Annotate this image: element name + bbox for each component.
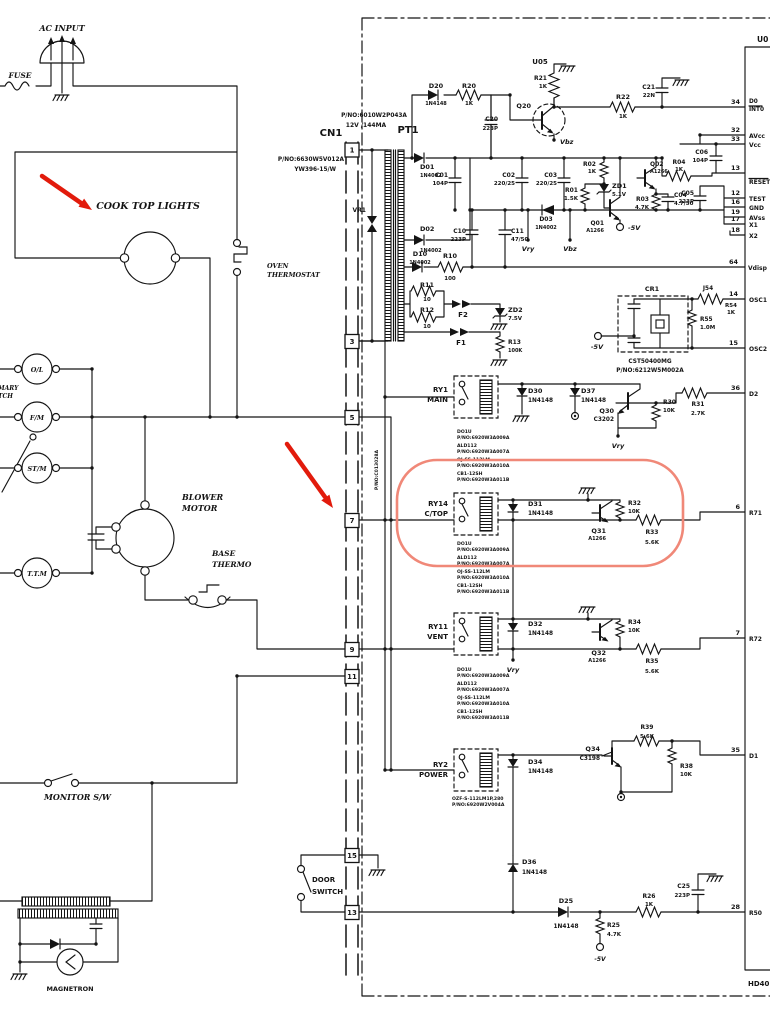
base-thermo-label-1: BASE <box>211 549 236 558</box>
zd1: ZD1 <box>612 182 627 190</box>
d36-val: 1N4148 <box>522 870 547 876</box>
pin34-int0: INT0 <box>749 107 764 113</box>
f2-label: F2 <box>458 311 468 319</box>
r30-val: 10K <box>663 408 676 414</box>
j54: J54 <box>702 286 713 292</box>
q31-val: A1266 <box>588 536 606 542</box>
magnetron-label: MAGNETRON <box>46 985 93 993</box>
c01: C01 <box>435 172 448 179</box>
rotary-switch <box>0 354 345 588</box>
cn1-pin-9: 9 <box>350 646 355 654</box>
q32-val: A1266 <box>588 658 606 664</box>
ry2: RY2 <box>433 761 448 769</box>
d32-val: 1N4148 <box>528 631 553 637</box>
q30: Q30 <box>599 407 614 415</box>
c02: C02 <box>502 172 515 179</box>
d37: D37 <box>581 387 595 395</box>
ry11-part-4: P/NO:6920W3A007A <box>457 687 510 693</box>
bottom-signal-row <box>359 856 745 951</box>
cn1-model: YW396-15/W <box>293 167 336 173</box>
ry14-part-6: P/NO:6920W3A010A <box>457 575 510 581</box>
c10: C10 <box>453 228 466 235</box>
neg5v-1: -5V <box>628 224 641 232</box>
d10-val: 1N4002 <box>409 260 431 266</box>
r31-val: 2.7K <box>691 411 706 417</box>
c06: C06 <box>695 149 708 156</box>
pin33-name: Vcc <box>749 142 761 149</box>
neg5v-2: -5V <box>591 343 604 351</box>
r38-val: 10K <box>680 772 693 778</box>
contact-ttm: T.T.M <box>27 570 48 578</box>
cn1-pin-3: 3 <box>350 338 355 346</box>
d10: D10 <box>413 250 428 258</box>
q01-val: A1266 <box>586 228 604 234</box>
d32: D32 <box>528 620 542 628</box>
annotation-arrow-cook-top <box>42 176 92 210</box>
pin13-num: 13 <box>731 164 740 172</box>
ry1-part-2: P/NO:6920W3A009A <box>457 435 510 441</box>
pin14-name: OSC1 <box>749 297 767 304</box>
pin17-name: X1 <box>749 222 758 229</box>
pin15-num: 15 <box>729 339 739 347</box>
ry1-part-6: P/NO:6920W3A010A <box>457 463 510 469</box>
cr1-label: CR1 <box>645 285 660 293</box>
q02: Q02 <box>650 161 663 168</box>
ry11-part-2: P/NO:6920W3A009A <box>457 673 510 679</box>
r22: R22 <box>616 93 630 101</box>
pin13-name: RESET <box>749 179 770 186</box>
c01-val: 104P <box>432 181 448 187</box>
oven-thermostat-label-1: OVEN <box>267 262 290 270</box>
door-switch-label-1: DOOR <box>312 876 336 884</box>
pin32-num: 32 <box>731 126 740 134</box>
ry14-part-5: OJ-SS-112LM <box>457 569 490 575</box>
q01: Q01 <box>591 220 604 227</box>
vry-3: Vry <box>507 666 520 674</box>
r10: R10 <box>443 252 458 260</box>
r21: R21 <box>534 75 547 82</box>
r10-val: 100 <box>444 276 456 282</box>
q34: Q34 <box>585 745 600 753</box>
zd1-val: 5.1V <box>612 192 627 198</box>
pin18-num: 18 <box>731 226 741 234</box>
oven-thermostat <box>234 240 248 418</box>
switch-label-frag-2: TCH <box>0 393 13 400</box>
r26-val: 1K <box>645 902 654 908</box>
c21: C21 <box>642 84 655 91</box>
ry1-name: MAIN <box>427 396 448 404</box>
door-switch-label-2: SWITCH <box>312 888 343 896</box>
pin28-num: 28 <box>731 903 741 911</box>
r20-val: 1K <box>465 101 474 107</box>
q32: Q32 <box>591 649 606 657</box>
q20: Q20 <box>516 102 531 110</box>
vry-2: Vry <box>612 442 625 450</box>
r31: R31 <box>692 401 705 408</box>
pin36-num: 36 <box>731 384 741 392</box>
d36: D36 <box>522 858 537 866</box>
d31-val: 1N4148 <box>528 511 553 517</box>
r22-val: 1K <box>619 114 628 120</box>
ry14-part-1: DO1U <box>457 541 472 547</box>
ry1-part-8: P/NO:6920W3A011B <box>457 477 510 483</box>
pin35-num: 35 <box>731 746 741 754</box>
fuse-label: FUSE <box>8 71 32 80</box>
c11-val: 47/50 <box>511 237 528 243</box>
relay-ry14-ctop <box>359 488 745 619</box>
monitor-sw-label: MONITOR S/W <box>43 792 112 802</box>
c03-val: 220/25 <box>536 181 557 187</box>
d01: D01 <box>420 163 435 171</box>
r25-val: 4.7K <box>607 932 622 938</box>
cn1-pin-1: 1 <box>350 147 355 155</box>
pin32-name: AVcc <box>749 133 765 140</box>
ry11-part-8: P/NO:6920W3A011B <box>457 715 510 721</box>
ry1: RY1 <box>433 386 448 394</box>
f1-label: F1 <box>456 339 466 347</box>
power-supply <box>404 64 768 366</box>
r33: R33 <box>646 529 659 536</box>
ry14-part-2: P/NO:6920W3A009A <box>457 547 510 553</box>
neg5v-3: -5V <box>594 956 607 963</box>
r35-val: 5.6K <box>645 669 660 675</box>
pin6-name: R71 <box>749 510 762 517</box>
r12: R12 <box>420 306 434 314</box>
r35: R35 <box>646 658 659 665</box>
pin64-name: Vdisp <box>748 265 768 272</box>
pt1-pn: P/NO:6010W2P043A <box>341 113 407 119</box>
d30: D30 <box>528 387 543 395</box>
c05: C05 <box>681 190 694 197</box>
ry14-part-7: CB1-12SH <box>457 583 483 589</box>
r25: R25 <box>607 922 620 929</box>
cn1-connector <box>345 142 359 975</box>
r38: R38 <box>680 763 693 770</box>
r11-val: 10 <box>423 297 431 303</box>
q31: Q31 <box>591 527 606 535</box>
r13-val: 100K <box>508 348 523 354</box>
r04-val: 1K <box>675 167 684 173</box>
d30-val: 1N4148 <box>528 398 553 404</box>
c10-val: 223P <box>450 237 466 243</box>
r02-val: 1K <box>588 169 597 175</box>
oven-thermostat-label-2: THERMOSTAT <box>267 271 321 279</box>
pin14-num: 14 <box>729 290 739 298</box>
c11: C11 <box>511 228 524 235</box>
r39-val: 5.6K <box>640 734 655 740</box>
d25: D25 <box>559 897 574 905</box>
r01: R01 <box>565 187 578 194</box>
pin15-name: OSC2 <box>749 346 767 353</box>
ry2-name: POWER <box>419 771 449 779</box>
cook-top-lights-label: COOK TOP LIGHTS <box>96 201 200 212</box>
c20: C20 <box>485 116 498 123</box>
pt1-rating: 12V /144MA <box>346 122 387 129</box>
c06-val: 104P <box>692 158 708 164</box>
d34: D34 <box>528 758 543 766</box>
pin35-name: D1 <box>749 753 758 760</box>
r54-val: 1K <box>727 310 736 316</box>
r21-val: 1K <box>539 84 548 90</box>
cn1-pin-11: 11 <box>347 673 357 681</box>
pin16-num: 16 <box>731 198 741 206</box>
ry1-part-3: ALD112 <box>457 443 477 449</box>
c21-val: 22N <box>643 93 656 99</box>
r55: R55 <box>700 317 713 323</box>
cn1-pin-7: 7 <box>350 517 355 525</box>
pt1-side-pn: P/NO:C013028A <box>374 450 380 490</box>
ry11-part-1: DO1U <box>457 667 472 673</box>
d02: D02 <box>420 225 434 233</box>
cn1-pn: P/NO:6630W5V012A <box>278 157 345 163</box>
d25-val: 1N4148 <box>553 924 578 930</box>
vbz-2: Vbz <box>563 245 577 253</box>
ry14-name: C/TOP <box>424 510 448 518</box>
r30: R30 <box>663 399 676 406</box>
pt1-label: PT1 <box>397 125 418 136</box>
d31: D31 <box>528 500 543 508</box>
ry11-part-7: CB1-12SH <box>457 709 483 715</box>
pin33-num: 33 <box>731 135 740 143</box>
c03: C03 <box>544 172 557 179</box>
ry14-part-3: ALD112 <box>457 555 477 561</box>
cr1-pn: P/NO:6212W5M002A <box>616 368 684 374</box>
pin12-num: 12 <box>731 189 740 197</box>
c05-val: 223P <box>678 199 694 205</box>
contact-stm: ST/M <box>27 465 47 473</box>
r03: R03 <box>636 196 649 203</box>
zd2-val: 7.5V <box>508 316 523 322</box>
r26: R26 <box>643 893 656 900</box>
q34-val: C3198 <box>580 756 600 762</box>
pt1-transformer <box>359 150 404 341</box>
pin17-num: 17 <box>731 215 740 223</box>
pin7-name: R72 <box>749 636 762 643</box>
ry2-part-1: OZF-S-112LM1P,280 <box>452 796 504 802</box>
r03-val: 4.7K <box>635 205 650 211</box>
ry11-name: VENT <box>427 633 448 641</box>
r04: R04 <box>673 159 686 166</box>
blower-motor <box>88 417 188 600</box>
ry11-part-6: P/NO:6920W3A010A <box>457 701 510 707</box>
r01-val: 1.5K <box>564 196 579 202</box>
pin34-d0: D0 <box>749 99 758 105</box>
c20-val: 223P <box>482 126 498 132</box>
r33-val: 5.6K <box>645 540 660 546</box>
ic-ref: U0 <box>757 35 768 44</box>
r32-val: 10K <box>628 509 641 515</box>
r32: R32 <box>628 500 641 507</box>
cn1-pin-15: 15 <box>347 852 357 860</box>
ry14: RY14 <box>428 500 448 508</box>
pin7-num: 7 <box>735 629 740 637</box>
d34-val: 1N4148 <box>528 769 553 775</box>
blower-motor-label-1: BLOWER <box>181 492 223 502</box>
d20: D20 <box>429 82 444 90</box>
vry-1: Vry <box>522 245 535 253</box>
monitor-switch <box>0 774 237 901</box>
ry1-part-4: P/NO:6920W3A007A <box>457 449 510 455</box>
cn1-label: CN1 <box>320 128 343 139</box>
magnetron <box>57 949 83 975</box>
annotation-arrow-cn1-pin7 <box>287 444 333 508</box>
cr1-model: CST50400MG <box>628 359 671 365</box>
ry11-part-5: OJ-SS-112LM <box>457 695 490 701</box>
d03: D03 <box>539 216 552 223</box>
ry11-part-3: ALD112 <box>457 681 477 687</box>
q02-val: A1266 <box>650 169 668 175</box>
cn1-pin-5: 5 <box>350 414 355 422</box>
switch-label-frag-1: MARY <box>0 385 19 392</box>
pin11-wire <box>237 676 345 783</box>
c25-val: 223P <box>674 893 690 899</box>
r12-val: 10 <box>423 324 431 330</box>
pin36-name: D2 <box>749 391 758 398</box>
ry11: RY11 <box>428 623 448 631</box>
contact-ol: O/L <box>31 366 44 374</box>
contact-fm: F/M <box>29 414 45 422</box>
r55-val: 1.0M <box>700 325 715 331</box>
d20-val: 1N4148 <box>425 101 447 107</box>
pin19-name: AVss <box>749 215 765 222</box>
r13: R13 <box>508 339 521 346</box>
q30-val: C3202 <box>594 417 614 423</box>
ic-part: HD40 <box>748 980 770 988</box>
pin28-name: R50 <box>749 910 762 917</box>
cn1-pin-13: 13 <box>347 909 357 917</box>
zd2: ZD2 <box>508 306 523 314</box>
relay-ry2-power <box>385 736 745 856</box>
r39: R39 <box>641 724 654 731</box>
r20: R20 <box>462 82 477 90</box>
ac-input-label: AC INPUT <box>38 23 85 33</box>
r11: R11 <box>420 281 435 289</box>
r34-val: 10K <box>628 628 641 634</box>
ry2-part-2: P/NO:6920W2V004A <box>452 802 505 808</box>
microwave-control-schematic: AC INPUTFUSECOOK TOP LIGHTSOVENTHERMOSTA… <box>0 0 770 1024</box>
pin6-num: 6 <box>735 503 740 511</box>
ry14-part-8: P/NO:6920W3A011B <box>457 589 510 595</box>
base-thermo-label-2: THERMO <box>212 560 252 569</box>
blower-motor-label-2: MOTOR <box>181 503 218 513</box>
vbz-1: Vbz <box>560 138 574 146</box>
c25: C25 <box>677 883 690 890</box>
r02: R02 <box>583 161 596 168</box>
relay-bus <box>359 341 391 770</box>
d37-val: 1N4148 <box>581 398 606 404</box>
r34: R34 <box>628 619 641 626</box>
d03-val: 1N4002 <box>535 225 557 231</box>
r54: R54 <box>725 303 737 309</box>
u05-label: U05 <box>532 58 548 66</box>
pin34-num: 34 <box>731 98 741 106</box>
c02-val: 220/25 <box>494 181 515 187</box>
door-switch <box>298 855 386 912</box>
vr1-label: VR1 <box>353 207 366 214</box>
pin18-name: X2 <box>749 233 758 240</box>
pin16-name: GND <box>749 205 764 212</box>
base-thermo <box>185 585 345 649</box>
pin12-name: TEST <box>749 196 767 203</box>
ry1-part-1: DO1U <box>457 429 472 435</box>
ry1-part-7: CB1-12SH <box>457 471 483 477</box>
pin64-num: 64 <box>729 258 739 266</box>
